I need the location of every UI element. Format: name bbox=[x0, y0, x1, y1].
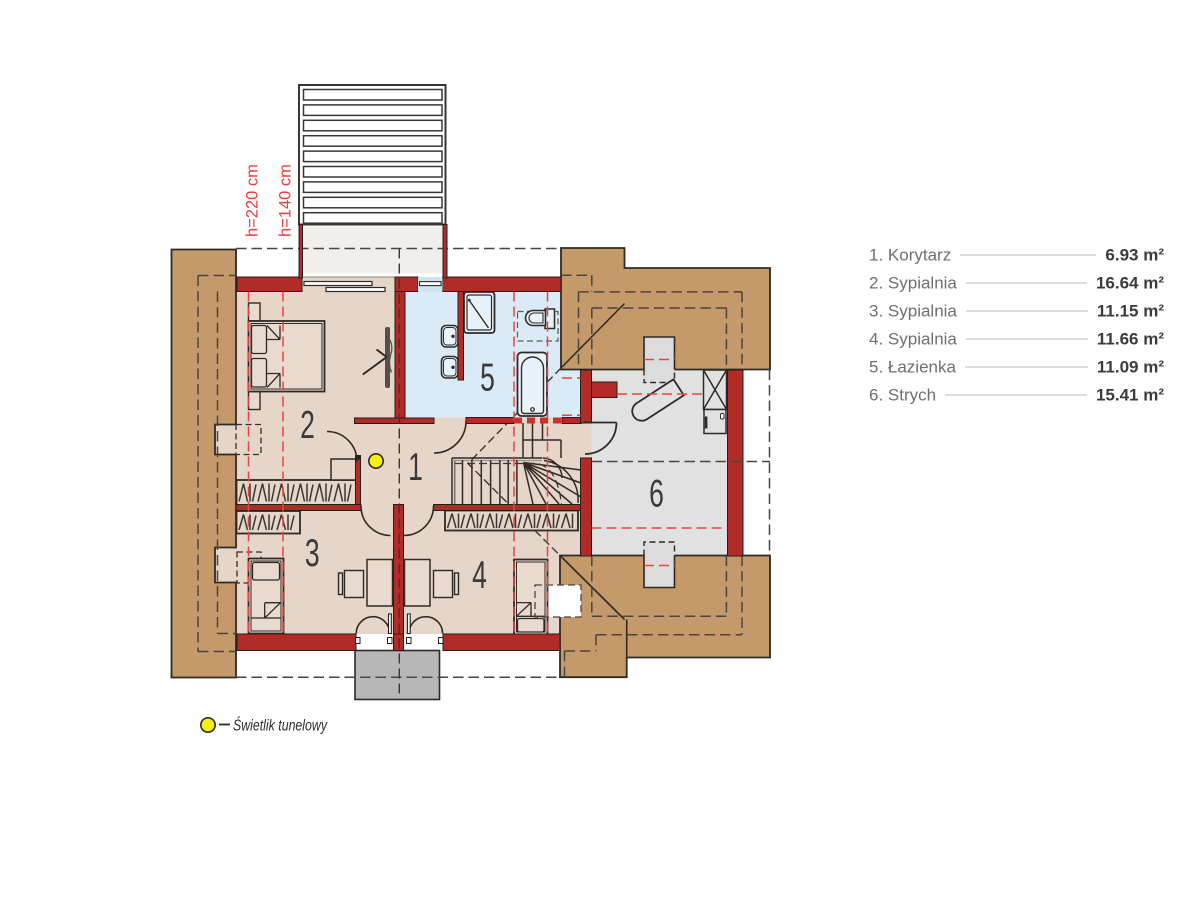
svg-text:3: 3 bbox=[305, 532, 320, 575]
svg-text:4: 4 bbox=[472, 554, 487, 597]
svg-text:11.66 m²: 11.66 m² bbox=[1097, 330, 1164, 349]
svg-text:1: 1 bbox=[408, 446, 423, 489]
svg-text:Świetlik tunelowy: Świetlik tunelowy bbox=[233, 717, 328, 735]
svg-text:1. Korytarz: 1. Korytarz bbox=[869, 246, 951, 265]
svg-text:2: 2 bbox=[300, 404, 315, 447]
svg-text:5: 5 bbox=[480, 357, 495, 400]
svg-text:11.15 m²: 11.15 m² bbox=[1097, 302, 1164, 321]
svg-text:3. Sypialnia: 3. Sypialnia bbox=[869, 302, 957, 321]
svg-text:16.64 m²: 16.64 m² bbox=[1096, 274, 1164, 293]
svg-text:4. Sypialnia: 4. Sypialnia bbox=[869, 330, 957, 349]
svg-text:15.41 m²: 15.41 m² bbox=[1096, 386, 1164, 405]
svg-text:6. Strych: 6. Strych bbox=[869, 386, 936, 405]
svg-text:5. Łazienka: 5. Łazienka bbox=[869, 358, 956, 377]
svg-text:h=140 cm: h=140 cm bbox=[277, 164, 295, 237]
svg-text:6: 6 bbox=[649, 473, 664, 516]
svg-text:h=220 cm: h=220 cm bbox=[244, 164, 262, 237]
svg-text:11.09 m²: 11.09 m² bbox=[1097, 358, 1164, 377]
svg-text:6.93 m²: 6.93 m² bbox=[1105, 246, 1164, 265]
svg-text:2. Sypialnia: 2. Sypialnia bbox=[869, 274, 957, 293]
